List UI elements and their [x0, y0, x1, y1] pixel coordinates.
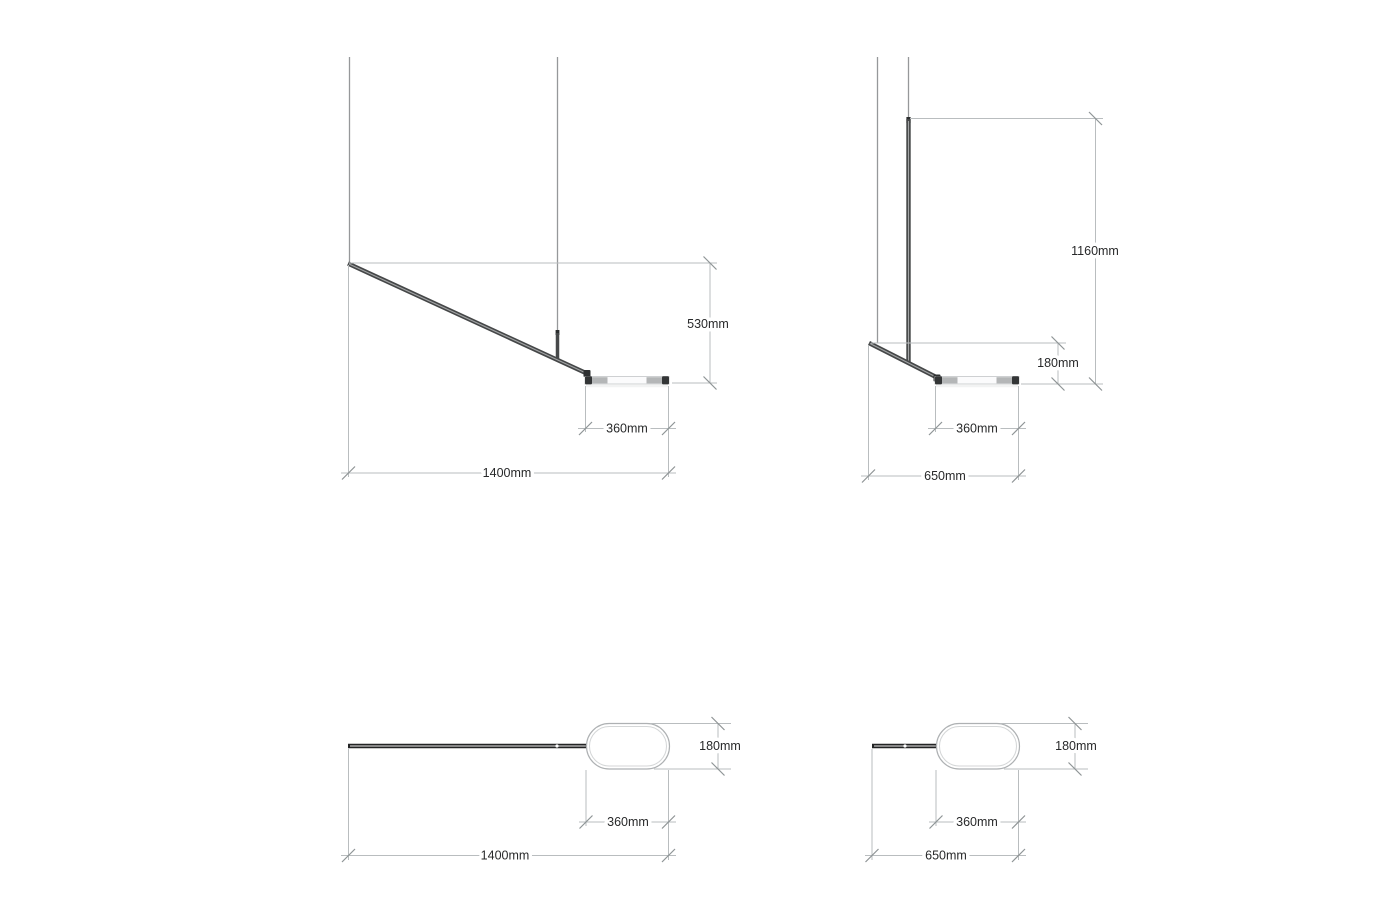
drawing-svg: 530mm 360mm 1400mm [0, 0, 1400, 912]
lamp-shade-plan [937, 724, 1020, 770]
dimension-label: 1400mm [481, 849, 530, 863]
dimension-shade-360: 360mm [578, 386, 676, 436]
plan-view-short: 180mm 360mm 650mm [865, 717, 1097, 863]
dimension-label: 650mm [925, 849, 967, 863]
shade-segment-left [592, 377, 608, 383]
shade-shadow [936, 385, 1018, 387]
shade-oval-outer [587, 724, 670, 770]
shade-cap-right [1012, 376, 1019, 384]
side-view-long: 530mm 360mm 1400mm [341, 57, 729, 480]
lamp-shade-plan [587, 724, 670, 770]
cable-pivot-dot [903, 744, 906, 747]
side-view-short: 1160mm 180mm 360mm 650mm [861, 57, 1119, 483]
lamp-shade-side [935, 376, 1019, 387]
technical-drawing-canvas: 530mm 360mm 1400mm [0, 0, 1400, 912]
shade-oval-outer [937, 724, 1020, 770]
shade-segment-left [942, 377, 958, 383]
shade-segment-right [997, 377, 1013, 383]
lamp-arm-highlight [349, 264, 587, 374]
dimension-shade-360: 360mm [928, 386, 1026, 436]
dimension-shade-360: 360mm [929, 770, 1026, 829]
shade-shadow [586, 385, 668, 387]
dimension-label: 650mm [924, 469, 966, 483]
dimension-label: 180mm [1037, 356, 1079, 370]
shade-segment-right [647, 377, 663, 383]
dimension-label: 180mm [699, 739, 741, 753]
shade-cap-left [935, 376, 942, 384]
plan-view-long: 180mm 360mm 1400mm [341, 717, 741, 863]
dimension-label: 360mm [956, 815, 998, 829]
lamp-shade-side [585, 376, 669, 387]
dimension-label: 360mm [956, 422, 998, 436]
shade-cap-right [662, 376, 669, 384]
cable-pivot-dot [555, 744, 558, 747]
dimension-height-1160: 1160mm [910, 112, 1119, 391]
dimension-shade-360: 360mm [579, 770, 676, 829]
dimension-label: 180mm [1055, 739, 1097, 753]
dimension-width-1400: 1400mm [341, 265, 676, 480]
dimension-label: 530mm [687, 317, 729, 331]
shade-cap-left [585, 376, 592, 384]
dimension-width-650: 650mm [861, 345, 1026, 483]
dimension-label: 1400mm [483, 466, 532, 480]
dimension-label: 1160mm [1071, 244, 1119, 258]
dimension-label: 360mm [607, 815, 649, 829]
shade-connector [584, 370, 591, 377]
lamp-arm-highlight [870, 344, 938, 379]
dimension-height-530: 530mm [349, 257, 729, 390]
dimension-label: 360mm [606, 422, 648, 436]
